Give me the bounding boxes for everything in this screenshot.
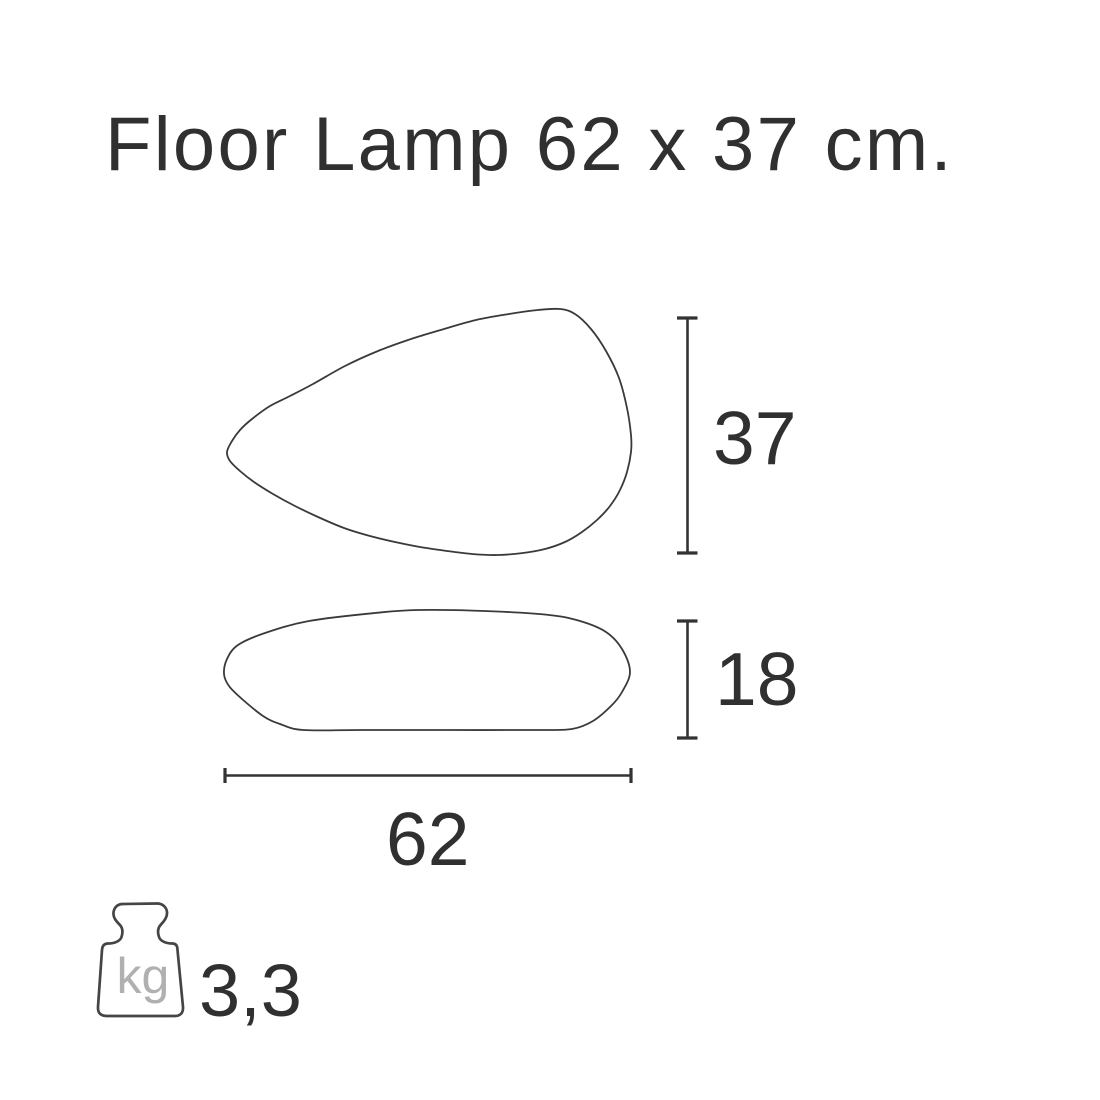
svg-text:62: 62 [386,797,469,881]
svg-text:3,3: 3,3 [199,949,302,1032]
svg-text:18: 18 [715,637,798,721]
svg-text:Floor Lamp 62 x 37 cm.: Floor Lamp 62 x 37 cm. [105,102,954,187]
svg-text:37: 37 [713,396,796,480]
svg-text:kg: kg [117,948,170,1004]
